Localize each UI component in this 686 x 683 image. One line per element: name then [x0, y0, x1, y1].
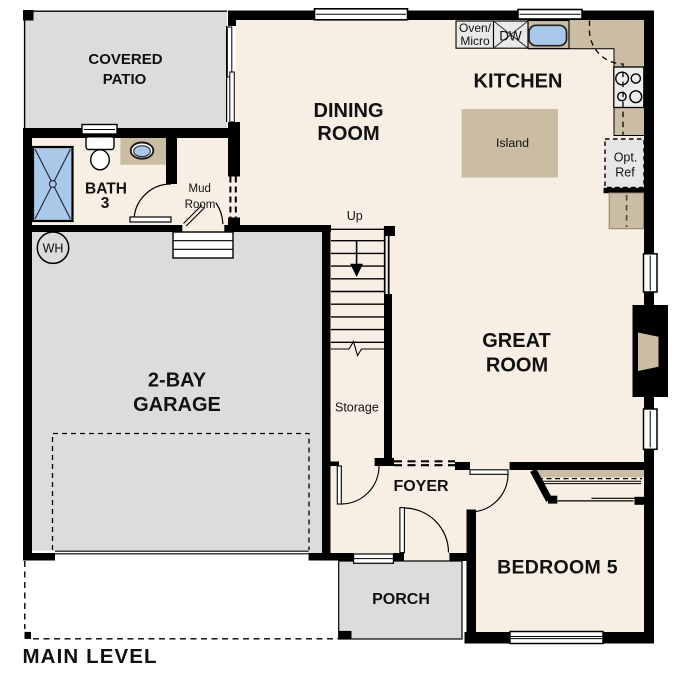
svg-text:Mud: Mud: [189, 183, 211, 195]
svg-text:BEDROOM 5: BEDROOM 5: [497, 557, 618, 579]
svg-text:Opt.: Opt.: [614, 151, 638, 165]
svg-text:Room: Room: [185, 199, 216, 211]
svg-text:Storage: Storage: [335, 401, 379, 415]
svg-text:PORCH: PORCH: [372, 591, 430, 608]
svg-text:GARAGE: GARAGE: [133, 394, 221, 416]
svg-text:3: 3: [101, 195, 110, 212]
svg-text:DW: DW: [499, 29, 522, 44]
svg-text:COVERED: COVERED: [88, 51, 162, 68]
svg-text:MAIN LEVEL: MAIN LEVEL: [23, 645, 158, 668]
svg-text:DINING: DINING: [314, 100, 384, 122]
svg-text:Island: Island: [496, 136, 529, 150]
svg-text:WH: WH: [43, 241, 64, 255]
svg-text:Ref: Ref: [615, 166, 635, 180]
svg-text:FOYER: FOYER: [393, 478, 449, 495]
svg-text:2-BAY: 2-BAY: [148, 370, 207, 392]
svg-text:GREAT: GREAT: [482, 330, 551, 352]
svg-text:Micro: Micro: [460, 34, 490, 48]
svg-text:Up: Up: [347, 209, 363, 223]
svg-text:ROOM: ROOM: [317, 123, 379, 145]
svg-text:PATIO: PATIO: [103, 71, 147, 88]
svg-text:ROOM: ROOM: [486, 355, 548, 377]
svg-text:KITCHEN: KITCHEN: [474, 70, 563, 92]
